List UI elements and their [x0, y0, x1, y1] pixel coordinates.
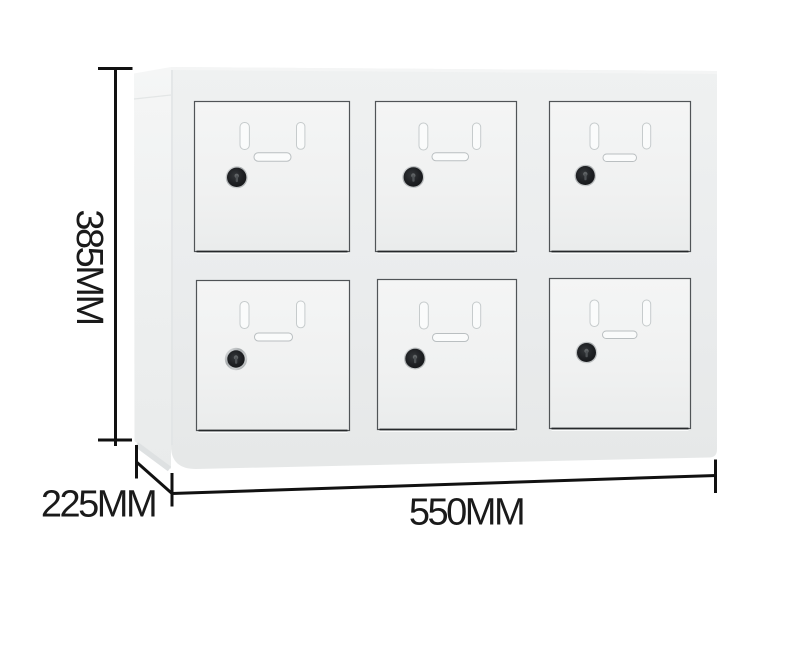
svg-text:550MM: 550MM: [409, 492, 523, 534]
svg-text:225MM: 225MM: [41, 484, 155, 526]
svg-text:385MM: 385MM: [68, 209, 110, 323]
